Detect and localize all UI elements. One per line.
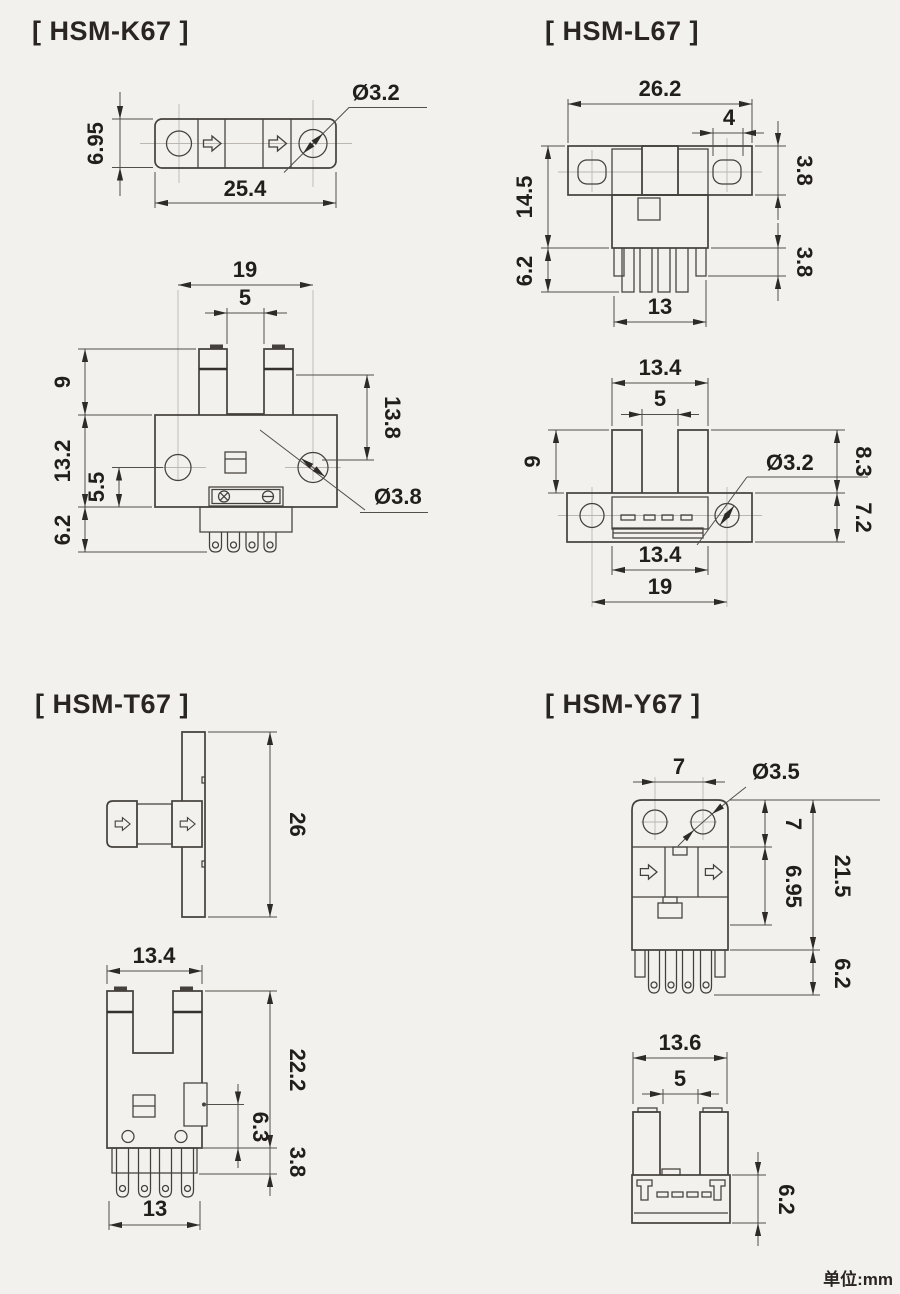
callout-k67-front-hole: Ø3.8 [260, 430, 428, 513]
dim-t67-front-width: 13.4 [107, 943, 202, 984]
model-title-l67: [ HSM-L67 ] [545, 16, 699, 46]
dim-label: 6.95 [83, 122, 108, 165]
dim-l67-front-pins: 6.2 [512, 248, 619, 292]
dim-l67-front-bar: 3.8 [755, 121, 817, 220]
panel-hsm-t67: [ HSM-T67 ] 26 [35, 689, 310, 1230]
optical-window [225, 452, 246, 473]
pin-base [200, 507, 292, 532]
pin-base [112, 1148, 197, 1173]
sensor-body-outline [567, 493, 752, 542]
model-title-t67: [ HSM-T67 ] [35, 689, 189, 719]
dim-label: 6.3 [248, 1112, 273, 1143]
dim-label: 5 [239, 285, 251, 310]
dim-label: 5 [674, 1066, 686, 1091]
dim-t67-front-tab: 6.3 [238, 1084, 273, 1168]
sensor-fork-outline [199, 349, 293, 415]
dim-label: 5.5 [84, 472, 109, 503]
dim-k67-front-lower: 5.5 [84, 468, 163, 508]
dim-label: 21.5 [830, 855, 855, 898]
model-title-k67: [ HSM-K67 ] [32, 16, 189, 46]
dim-y67-front-pins: 6.2 [714, 950, 855, 995]
dim-label: 4 [723, 105, 736, 130]
sensor-body-outline [632, 1175, 730, 1223]
optical-window [638, 198, 660, 220]
model-title-y67: [ HSM-Y67 ] [545, 689, 701, 719]
panel-hsm-k67: [ HSM-K67 ] 6.95 25.4 [32, 16, 428, 552]
callout-k67-side-hole: Ø3.2 [284, 80, 427, 173]
dim-label: 13.6 [659, 1030, 702, 1055]
dim-label: 13.4 [639, 542, 683, 567]
l67-top-view: 13.4 5 9 8.3 7.2 [520, 355, 876, 607]
dim-label: 13.4 [639, 355, 683, 380]
dim-t67-front-step: 3.8 [199, 1147, 310, 1196]
dim-y67-top-slot: 5 [642, 1066, 719, 1104]
dim-label: 5 [654, 386, 666, 411]
dim-label: 9 [520, 455, 545, 467]
dim-label: 19 [233, 257, 257, 282]
direction-arrow-icon [180, 818, 195, 831]
panel-hsm-l67: [ HSM-L67 ] 26.2 [512, 16, 876, 607]
dim-label: 6.2 [830, 958, 855, 989]
dim-label: Ø3.8 [374, 484, 422, 509]
y67-top-view: 13.6 5 6.2 [632, 1030, 799, 1246]
dim-label: 25.4 [224, 176, 268, 201]
dim-label: 7 [781, 818, 806, 830]
dim-l67-front-step: 3.8 [708, 223, 817, 301]
dim-label: 13 [648, 294, 672, 319]
dim-l67-top-base: 7.2 [755, 493, 876, 542]
dim-label: 6.2 [774, 1184, 799, 1215]
dim-label: 22.2 [285, 1049, 310, 1092]
t67-front-view: 13.4 22.2 3.8 6.3 13 [107, 943, 310, 1230]
dim-label: 19 [648, 574, 672, 599]
dim-k67-side-width: 25.4 [155, 172, 336, 208]
dim-label: 6.2 [512, 256, 537, 287]
dim-k67-front-pitch: 19 [178, 257, 313, 285]
k67-front-view: 19 5 9 13.2 6.2 [50, 257, 428, 552]
callout-y67-front-hole: Ø3.5 [678, 759, 800, 846]
dim-k67-side-height: 6.95 [83, 92, 153, 196]
panel-hsm-y67: [ HSM-Y67 ] 7 [545, 689, 880, 1246]
dim-l67-front-hole-len: 4 [692, 105, 764, 156]
direction-arrow-icon [115, 818, 130, 831]
dim-l67-top-prong: 9 [520, 430, 609, 493]
dim-label: 9 [50, 376, 75, 388]
dim-k67-front-slot: 5 [205, 285, 287, 344]
dim-label: 14.5 [512, 176, 537, 219]
dim-label: 6.95 [781, 865, 806, 908]
direction-arrow-icon [640, 865, 657, 879]
dim-y67-top-base: 6.2 [732, 1152, 799, 1246]
pins [614, 248, 706, 292]
drawing-sheet: [ HSM-K67 ] 6.95 25.4 [0, 0, 900, 1294]
sensor-head [107, 801, 137, 847]
optical-window [658, 903, 682, 918]
dim-label: 13.8 [380, 396, 405, 439]
dim-y67-front-top: 7 [730, 800, 880, 847]
l67-front-view: 26.2 4 14.5 6.2 3.8 [512, 76, 817, 327]
dim-label: Ø3.5 [752, 759, 800, 784]
dim-k67-front-pins: 6.2 [50, 507, 207, 552]
dim-label: 6.2 [50, 515, 75, 546]
dim-t67-side-plate: 26 [208, 732, 310, 917]
dim-l67-top-slot: 5 [621, 386, 699, 426]
dim-label: 7.2 [851, 502, 876, 533]
dim-label: 3.8 [792, 247, 817, 278]
dim-label: 8.3 [851, 446, 876, 477]
dim-label: 13 [143, 1196, 167, 1221]
fork-prongs [633, 1112, 728, 1175]
dimension-drawing: [ HSM-K67 ] 6.95 25.4 [0, 0, 900, 1294]
fork-prongs [612, 430, 708, 493]
dim-k67-front-depth: 13.8 [296, 375, 405, 460]
dim-label: 7 [673, 754, 685, 779]
dim-label: Ø3.2 [766, 450, 814, 475]
dim-t67-front-pin-row: 13 [109, 1196, 200, 1230]
callout-l67-top-hole: Ø3.2 [697, 450, 868, 545]
dim-l67-top-body: 13.4 [612, 542, 708, 575]
connector-strip [209, 487, 283, 506]
pins [635, 950, 725, 993]
dim-label: 13.2 [50, 440, 75, 483]
y67-front-view: 7 Ø3.5 7 6.95 21.5 [632, 754, 880, 995]
dim-label: 26 [285, 812, 310, 836]
dim-l67-front-height: 14.5 [512, 146, 609, 248]
k67-side-view: 6.95 25.4 Ø3.2 [83, 80, 427, 208]
dim-label: 26.2 [639, 76, 682, 101]
direction-arrow-icon [705, 865, 722, 879]
dim-y67-front-band: 6.95 [730, 847, 806, 925]
t67-side-view: 26 [107, 732, 310, 917]
unit-label: 单位:mm [823, 1269, 893, 1289]
dim-label: Ø3.2 [352, 80, 400, 105]
dim-l67-top-pitch: 19 [592, 574, 727, 602]
dim-label: 13.4 [133, 943, 177, 968]
dim-y67-front-pitch: 7 [633, 754, 725, 782]
dim-l67-front-pin-row: 13 [614, 280, 706, 327]
pins [210, 532, 277, 552]
dim-label: 3.8 [792, 155, 817, 186]
dim-k67-front-upper: 9 [50, 349, 196, 415]
mounting-bar [568, 146, 752, 195]
dim-label: 3.8 [285, 1147, 310, 1178]
vent-slots [657, 1192, 711, 1197]
